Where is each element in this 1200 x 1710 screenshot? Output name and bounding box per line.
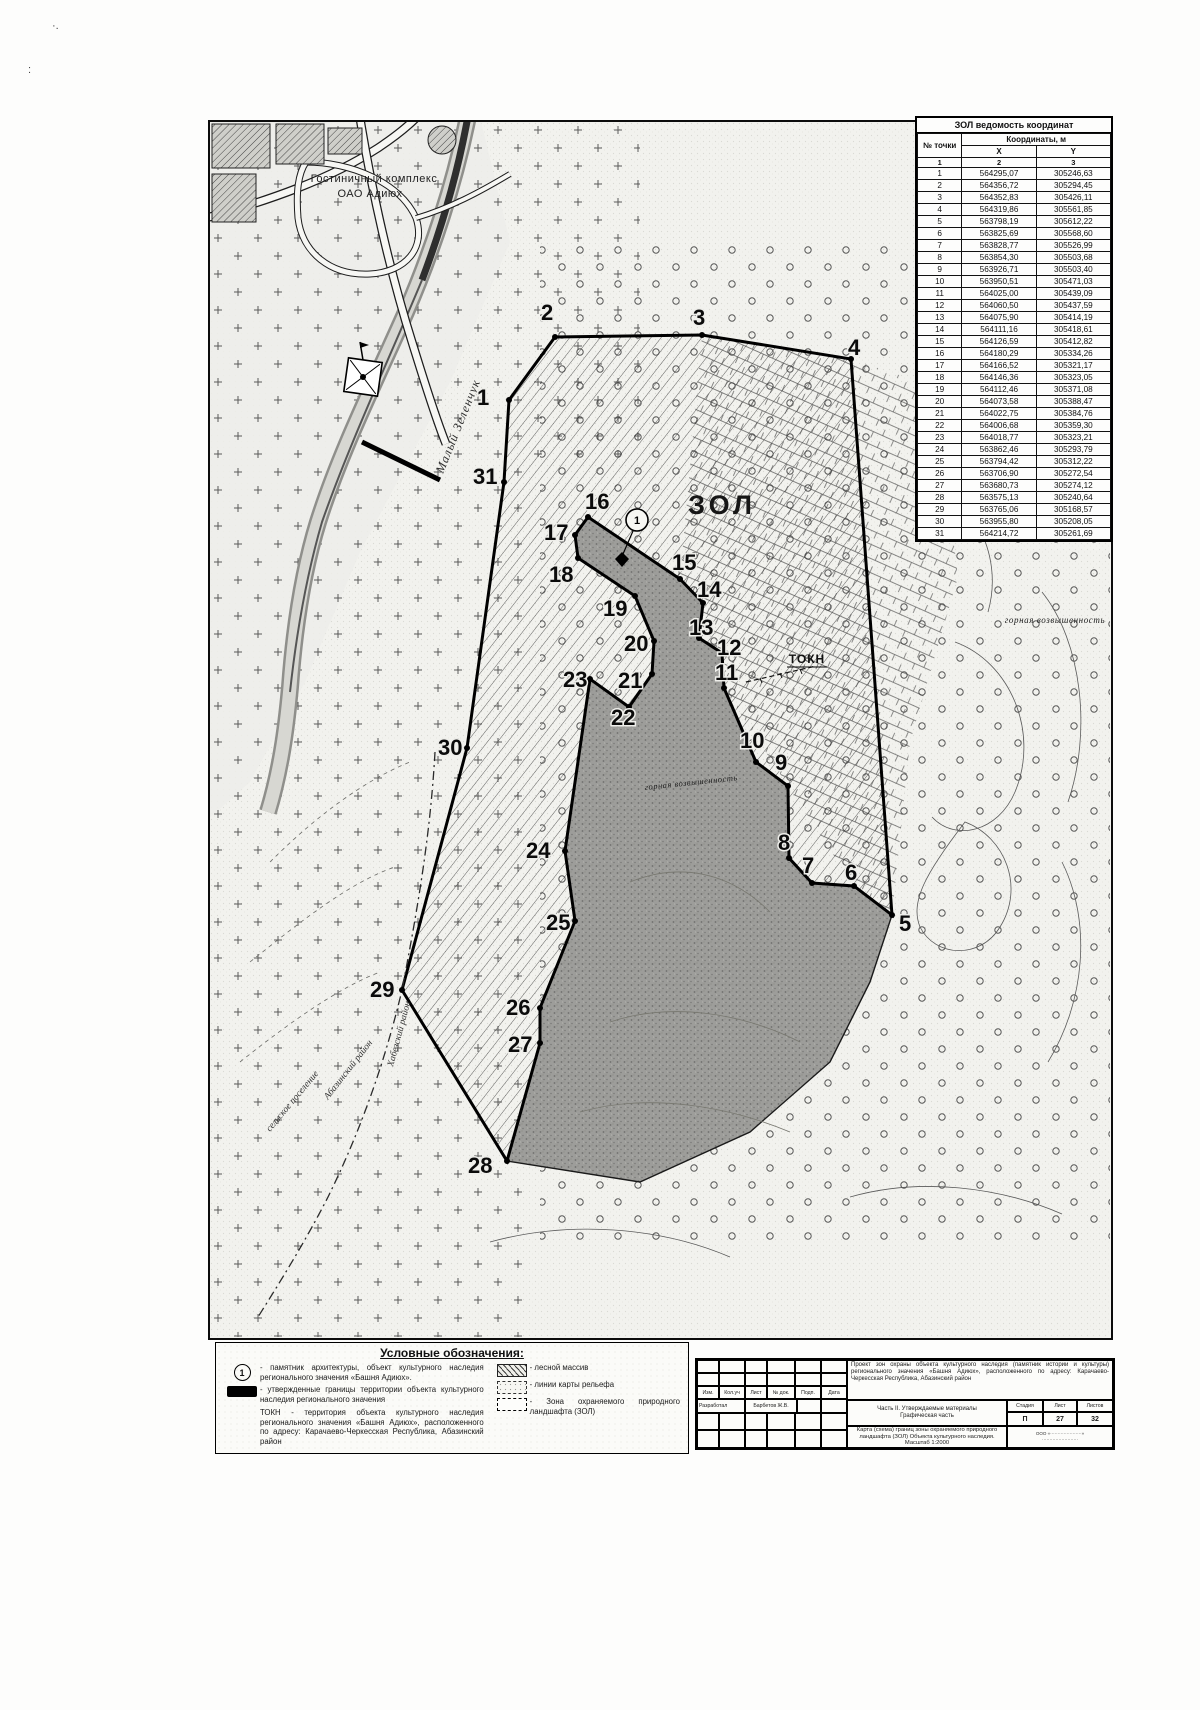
boundary-vertex-dot	[504, 1158, 510, 1164]
boundary-point-label: 3	[693, 305, 705, 330]
boundary-point-label: 8	[778, 830, 790, 855]
boundary-point-label: 1	[477, 385, 489, 410]
boundary-point-label: 6	[845, 860, 857, 885]
legend-item-text: - линии карты рельефа	[530, 1380, 614, 1394]
boundary-vertex-dot	[721, 685, 727, 691]
boundary-vertex-dot	[575, 555, 581, 561]
boundary-point-label: 13	[689, 615, 713, 640]
boundary-point-label: 20	[624, 631, 648, 656]
scan-artifact: :	[28, 64, 31, 76]
table-row: 9563926,71305503,40	[918, 264, 1111, 276]
table-row: 14564111,16305418,61	[918, 324, 1111, 336]
table-row: 24563862,46305293,79	[918, 444, 1111, 456]
table-row: 29563765,06305168,57	[918, 504, 1111, 516]
stamp-organization: ООО «·····················» ············…	[1007, 1426, 1113, 1448]
table-row: 31564214,72305261,69	[918, 528, 1111, 540]
boundary-point-label: 25	[546, 910, 570, 935]
table-row: 28563575,13305240,64	[918, 492, 1111, 504]
legend: Условные обозначения: 1 - памятник архит…	[215, 1342, 689, 1454]
legend-item-text: - Зона охраняемого природного ландшафта …	[530, 1397, 680, 1416]
boundary-point-label: 9	[775, 750, 787, 775]
map-label: ТОКН	[789, 652, 825, 666]
boundary-point-label: 12	[717, 635, 741, 660]
table-row: 10563950,51305471,03	[918, 276, 1111, 288]
table-row: 16564180,29305334,26	[918, 348, 1111, 360]
map-label: ОАО Адиюх	[337, 188, 402, 200]
boundary-vertex-dot	[651, 638, 657, 644]
col-header-x: X	[962, 146, 1036, 158]
table-row: 15564126,59305412,82	[918, 336, 1111, 348]
table-row: 12564060,50305437,59	[918, 300, 1111, 312]
stamp-part-line1: Часть II. Утверждаемые материалы	[877, 1406, 977, 1413]
table-row: 7563828,77305526,99	[918, 240, 1111, 252]
stamp-project-title: Проект зон охраны объекта культурного на…	[847, 1360, 1113, 1400]
coordinates-table: ЗОЛ ведомость координат № точки Координа…	[915, 116, 1113, 542]
stamp-col-koluch: Кол.уч	[719, 1386, 745, 1399]
map-label: 1	[634, 515, 640, 527]
boundary-vertex-dot	[572, 532, 578, 538]
zol-swatch-icon	[497, 1398, 527, 1411]
black-border-swatch-icon	[227, 1386, 257, 1397]
boundary-vertex-dot	[537, 1040, 543, 1046]
boundary-vertex-dot	[585, 514, 591, 520]
boundary-vertex-dot	[572, 918, 578, 924]
boundary-vertex-dot	[785, 783, 791, 789]
map-label: ЗОЛ	[688, 490, 756, 520]
stamp-name: Барбетов Ж.В.	[745, 1399, 797, 1413]
boundary-vertex-dot	[632, 593, 638, 599]
table-row: 5563798,19305612,22	[918, 216, 1111, 228]
col-number: 3	[1036, 158, 1110, 168]
col-header-coords: Координаты, м	[962, 134, 1111, 146]
boundary-point-label: 7	[802, 853, 814, 878]
boundary-point-label: 10	[740, 728, 764, 753]
boundary-point-label: 23	[563, 667, 587, 692]
scanned-map-sheet: ·. :	[0, 0, 1200, 1710]
table-row: 25563794,42305312,22	[918, 456, 1111, 468]
title-block: Изм. Кол.уч Лист № док. Подп. Дата Разра…	[695, 1358, 1115, 1450]
col-header-y: Y	[1036, 146, 1110, 158]
relief-swatch-icon	[497, 1381, 527, 1394]
table-row: 11564025,00305439,09	[918, 288, 1111, 300]
table-row: 1564295,07305246,63	[918, 168, 1111, 180]
boundary-vertex-dot	[809, 880, 815, 886]
legend-item-tokn: ТОКН - территория объекта культурного на…	[224, 1408, 484, 1447]
boundary-vertex-dot	[699, 332, 705, 338]
boundary-vertex-dot	[501, 479, 507, 485]
map-label: Гостиничный комплекс	[311, 173, 438, 185]
map-label: горная возвышенность	[1005, 615, 1105, 625]
stamp-col-podp: Подп.	[795, 1386, 821, 1399]
legend-item-text: ТОКН - территория объекта культурного на…	[260, 1408, 484, 1447]
boundary-point-label: 30	[438, 735, 462, 760]
boundary-point-label: 21	[618, 668, 642, 693]
legend-item-relief: - линии карты рельефа	[494, 1380, 680, 1394]
table-row: 27563680,73305274,12	[918, 480, 1111, 492]
stamp-role: Разработал	[697, 1399, 745, 1413]
scan-artifact: ·.	[52, 20, 59, 32]
boundary-point-label: 27	[508, 1032, 532, 1057]
boundary-vertex-dot	[537, 1005, 543, 1011]
legend-item-text: - лесной массив	[530, 1363, 589, 1377]
legend-item-forest: - лесной массив	[494, 1363, 680, 1377]
legend-title: Условные обозначения:	[216, 1346, 688, 1360]
table-row: 18564146,36305323,05	[918, 372, 1111, 384]
boundary-vertex-dot	[506, 397, 512, 403]
boundary-point-label: 2	[541, 300, 553, 325]
stamp-stage-label: Стадия	[1007, 1400, 1043, 1412]
stamp-col-ndok: № док.	[767, 1386, 795, 1399]
stamp-map-title: Карта (схема) границ зоны охраняемого пр…	[847, 1426, 1007, 1448]
table-row: 17564166,52305321,17	[918, 360, 1111, 372]
table-row: 13564075,90305414,19	[918, 312, 1111, 324]
boundary-vertex-dot	[464, 745, 470, 751]
boundary-point-label: 16	[585, 489, 609, 514]
boundary-point-label: 11	[715, 660, 738, 685]
boundary-point-label: 4	[848, 335, 861, 360]
stamp-col-list: Лист	[745, 1386, 767, 1399]
table-row: 19564112,46305371,08	[918, 384, 1111, 396]
boundary-vertex-dot	[889, 912, 895, 918]
boundary-point-label: 22	[611, 705, 635, 730]
boundary-vertex-dot	[399, 987, 405, 993]
table-row: 26563706,90305272,54	[918, 468, 1111, 480]
col-number: 2	[962, 158, 1036, 168]
boundary-point-label: 26	[506, 995, 530, 1020]
boundary-point-label: 14	[697, 577, 722, 602]
legend-item-borders: - утвержденные границы территории объект…	[224, 1385, 484, 1404]
boundary-point-label: 31	[473, 464, 497, 489]
boundary-vertex-dot	[552, 334, 558, 340]
boundary-point-label: 18	[549, 562, 573, 587]
boundary-point-label: 19	[603, 596, 627, 621]
boundary-vertex-dot	[587, 676, 593, 682]
legend-item-text: - утвержденные границы территории объект…	[260, 1385, 484, 1404]
boundary-point-label: 17	[544, 520, 568, 545]
table-row: 8563854,30305503,68	[918, 252, 1111, 264]
table-row: 30563955,80305208,05	[918, 516, 1111, 528]
boundary-point-label: 5	[899, 911, 911, 936]
table-row: 3564352,83305426,11	[918, 192, 1111, 204]
boundary-vertex-dot	[786, 855, 792, 861]
boundary-point-label: 24	[526, 838, 551, 863]
table-row: 21564022,75305384,76	[918, 408, 1111, 420]
table-row: 4564319,86305561,85	[918, 204, 1111, 216]
stamp-sheets-label: Листов	[1077, 1400, 1113, 1412]
stamp-col-izm: Изм.	[697, 1386, 719, 1399]
table-row: 22564006,68305359,30	[918, 420, 1111, 432]
table-row: 20564073,58305388,47	[918, 396, 1111, 408]
col-header-point: № точки	[918, 134, 962, 158]
monument-circle-icon: 1	[234, 1364, 251, 1381]
stamp-col-data: Дата	[821, 1386, 847, 1399]
stamp-part-line2: Графическая часть	[900, 1413, 954, 1420]
table-row: 2564356,72305294,45	[918, 180, 1111, 192]
boundary-vertex-dot	[677, 576, 683, 582]
boundary-point-label: 28	[468, 1153, 492, 1178]
boundary-vertex-dot	[753, 759, 759, 765]
boundary-point-label: 15	[672, 550, 696, 575]
stamp-sheets-value: 32	[1077, 1412, 1113, 1426]
table-row: 23564018,77305323,21	[918, 432, 1111, 444]
legend-item-zol: - Зона охраняемого природного ландшафта …	[494, 1397, 680, 1416]
stamp-stage-value: П	[1007, 1412, 1043, 1426]
coordinates-table-title: ЗОЛ ведомость координат	[917, 118, 1111, 133]
forest-swatch-icon	[497, 1364, 527, 1377]
legend-item-text: - памятник архитектуры, объект культурно…	[260, 1363, 484, 1382]
legend-item-monument: 1 - памятник архитектуры, объект культур…	[224, 1363, 484, 1382]
col-number: 1	[918, 158, 962, 168]
boundary-point-label: 29	[370, 977, 394, 1002]
table-row: 6563825,69305568,60	[918, 228, 1111, 240]
boundary-vertex-dot	[562, 848, 568, 854]
stamp-sheet-value: 27	[1043, 1412, 1077, 1426]
stamp-sheet-label: Лист	[1043, 1400, 1077, 1412]
boundary-vertex-dot	[649, 671, 655, 677]
